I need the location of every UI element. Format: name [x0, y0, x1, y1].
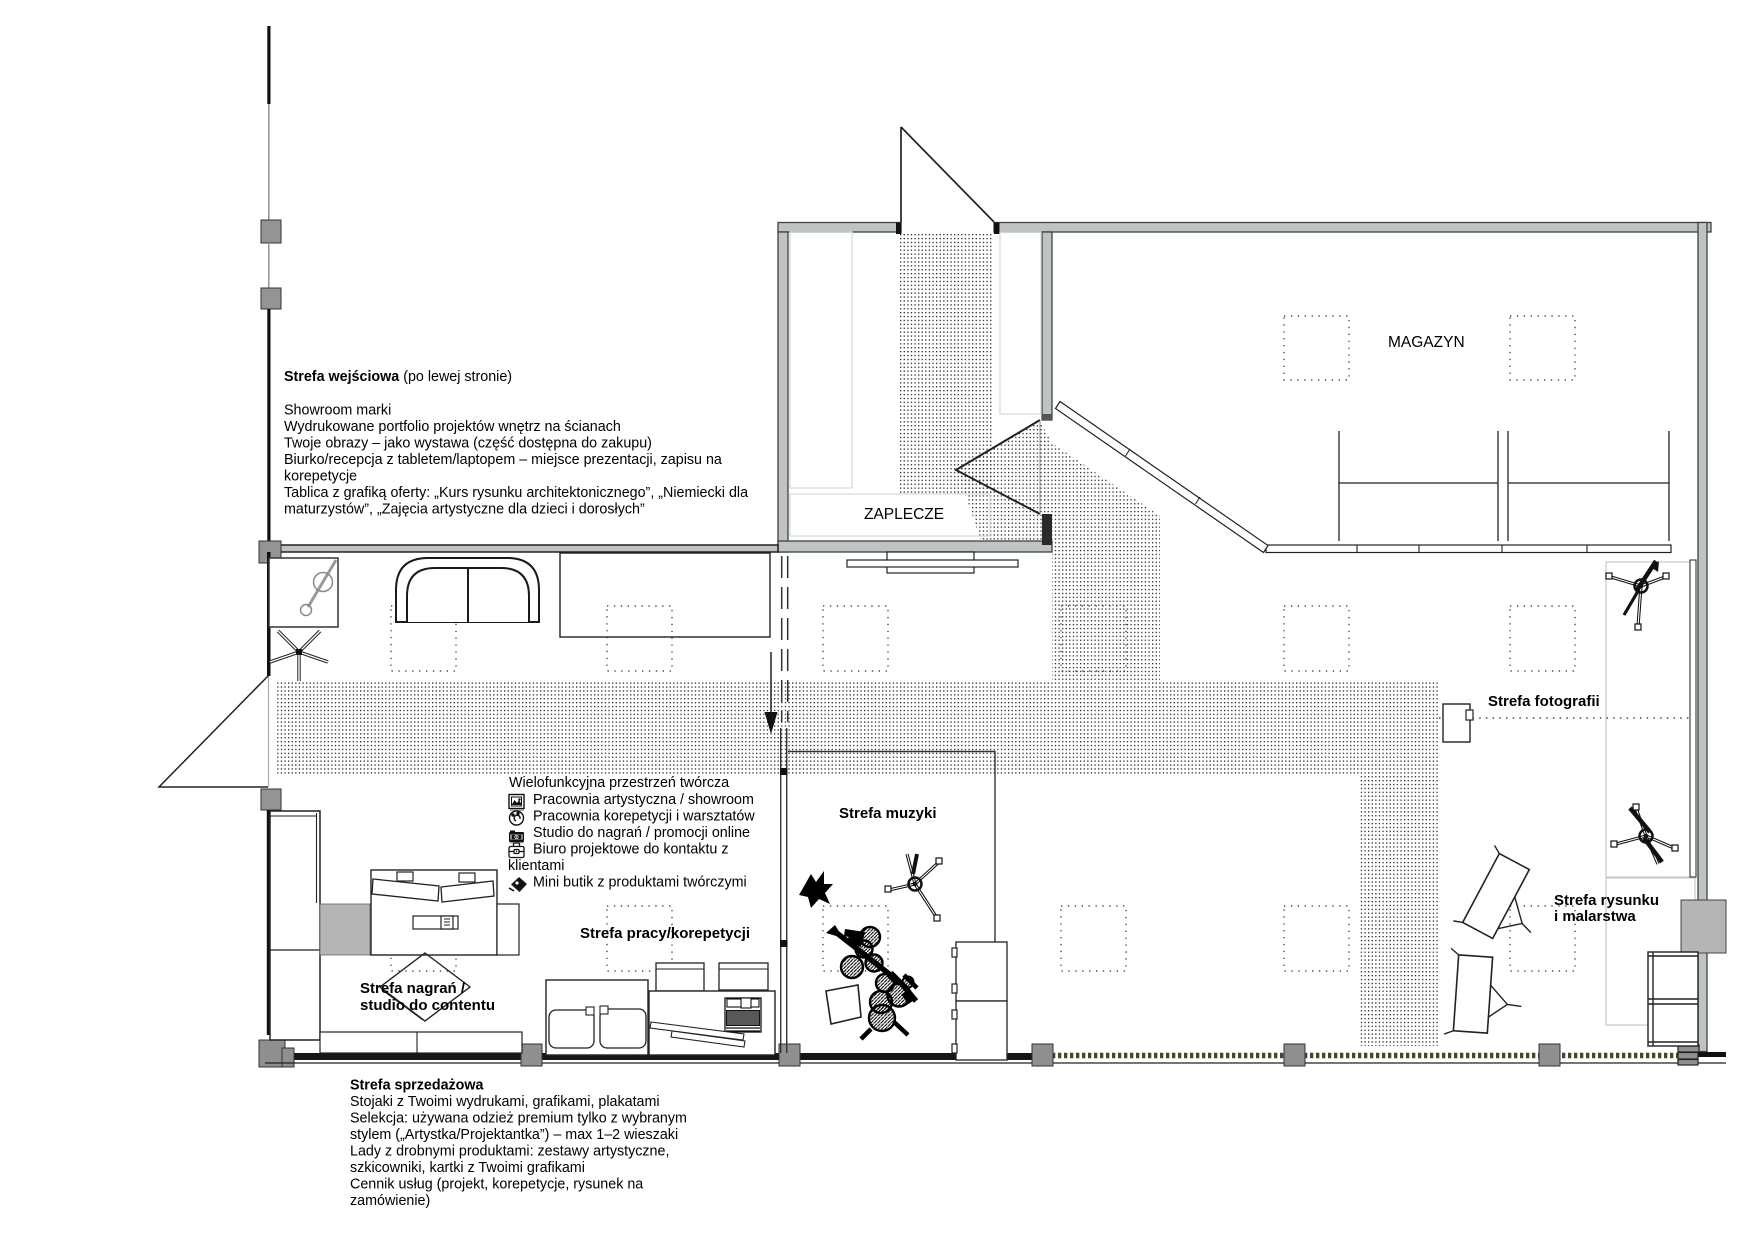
svg-text:Lady z drobnymi produktami: ze: Lady z drobnymi produktami: zestawy arty… [350, 1144, 669, 1160]
svg-text:MAGAZYN: MAGAZYN [1388, 334, 1465, 351]
svg-text:Strefa muzyki: Strefa muzyki [839, 805, 937, 822]
svg-text:korepetycje: korepetycje [284, 469, 357, 485]
svg-text:klientami: klientami [508, 858, 564, 874]
svg-text:Studio do nagrań / promocji on: Studio do nagrań / promocji online [533, 825, 750, 841]
svg-text:studio do contentu: studio do contentu [360, 997, 495, 1014]
svg-text:Twoje obrazy – jako wystawa (c: Twoje obrazy – jako wystawa (część dostę… [284, 436, 652, 452]
svg-text:Mini butik z produktami twórcz: Mini butik z produktami twórczymi [533, 875, 747, 891]
svg-text:Selekcja: używana odzież premi: Selekcja: używana odzież premium tylko z… [350, 1111, 687, 1127]
svg-text:Cennik usług (projekt, korepet: Cennik usług (projekt, korepetycje, rysu… [350, 1177, 643, 1193]
svg-text:maturzystów”, „Zajęcia artysty: maturzystów”, „Zajęcia artystyczne dla d… [284, 502, 645, 518]
svg-text:Tablica z grafiką oferty: „Kur: Tablica z grafiką oferty: „Kurs rysunku … [284, 485, 748, 501]
svg-text:Strefa fotografii: Strefa fotografii [1488, 693, 1600, 710]
svg-text:Pracownia artystyczna / showro: Pracownia artystyczna / showroom [533, 792, 754, 808]
svg-text:Showroom marki: Showroom marki [284, 403, 391, 419]
svg-text:stylem („Artystka/Projektantka: stylem („Artystka/Projektantka”) – max 1… [350, 1127, 678, 1143]
svg-text:Strefa nagrań /: Strefa nagrań / [360, 980, 466, 997]
svg-text:zamówienie): zamówienie) [350, 1193, 430, 1209]
svg-text:Wydrukowane portfolio projektó: Wydrukowane portfolio projektów wnętrz n… [284, 419, 621, 435]
svg-text:Strefa pracy/korepetycji: Strefa pracy/korepetycji [580, 925, 750, 942]
svg-text:Wielofunkcyjna przestrzeń twór: Wielofunkcyjna przestrzeń twórcza [509, 775, 729, 791]
svg-text:Strefa rysunku: Strefa rysunku [1554, 892, 1659, 909]
svg-text:i malarstwa: i malarstwa [1554, 908, 1636, 925]
svg-text:szkicowniki, kartki z Twoimi g: szkicowniki, kartki z Twoimi grafikami [350, 1160, 585, 1176]
svg-text:Strefa sprzedażowa: Strefa sprzedażowa [350, 1078, 485, 1094]
svg-text:Biuro projektowe do kontaktu z: Biuro projektowe do kontaktu z [533, 842, 729, 858]
svg-text:Stojaki z Twoimi wydrukami, gr: Stojaki z Twoimi wydrukami, grafikami, p… [350, 1094, 660, 1110]
svg-text:Biurko/recepcja z tabletem/lap: Biurko/recepcja z tabletem/laptopem – mi… [284, 452, 722, 468]
svg-text:ZAPLECZE: ZAPLECZE [864, 506, 944, 523]
svg-text:Pracownia korepetycji i warszt: Pracownia korepetycji i warsztatów [533, 809, 755, 825]
svg-text:Strefa wejściowa (po lewej str: Strefa wejściowa (po lewej stronie) [284, 369, 512, 385]
